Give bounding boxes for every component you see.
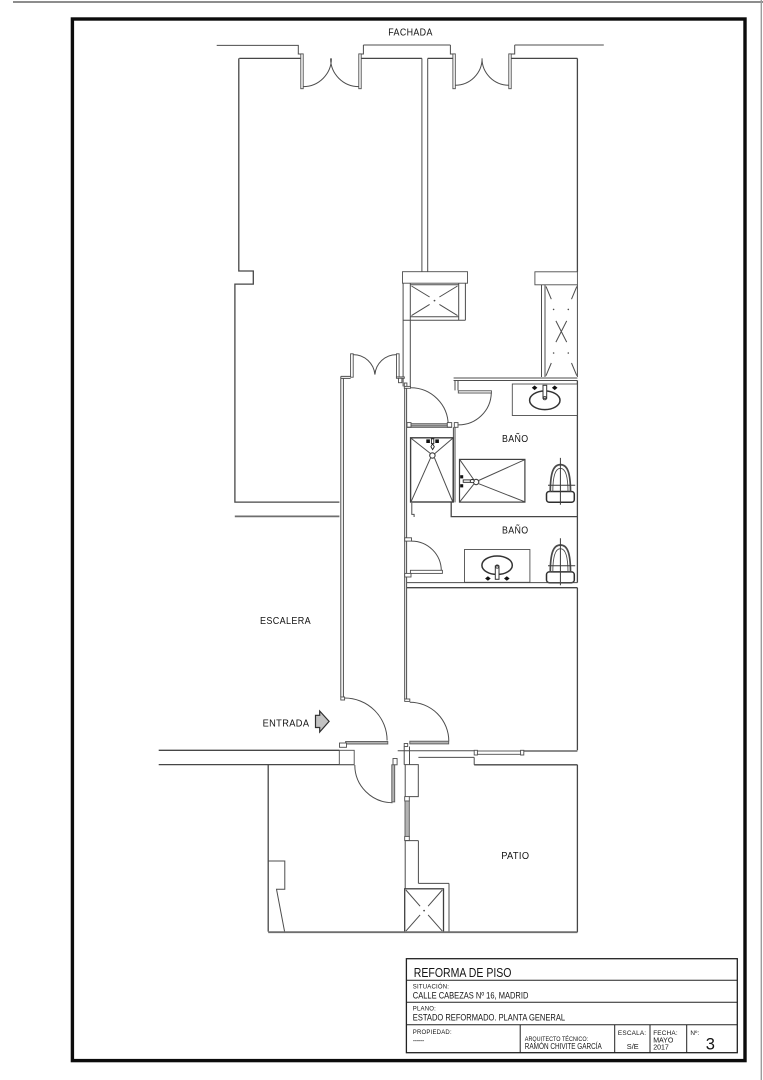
svg-text:RAMÓN CHIVITE GARCÍA: RAMÓN CHIVITE GARCÍA bbox=[525, 1042, 603, 1051]
svg-text:S/E: S/E bbox=[627, 1042, 639, 1051]
svg-text:FECHA:: FECHA: bbox=[653, 1030, 678, 1037]
svg-text:SITUACIÓN:: SITUACIÓN: bbox=[413, 983, 449, 990]
svg-text:------: ------ bbox=[413, 1038, 425, 1045]
svg-text:MAYO: MAYO bbox=[653, 1037, 674, 1044]
svg-text:3: 3 bbox=[706, 1036, 715, 1054]
svg-text:ESCALERA: ESCALERA bbox=[260, 616, 311, 627]
svg-text:REFORMA DE PISO: REFORMA DE PISO bbox=[414, 965, 512, 980]
svg-text:BAÑO: BAÑO bbox=[502, 432, 529, 445]
svg-text:BAÑO: BAÑO bbox=[502, 523, 529, 536]
svg-text:Nº:: Nº: bbox=[690, 1030, 699, 1037]
svg-text:ENTRADA: ENTRADA bbox=[263, 718, 310, 729]
svg-text:FACHADA: FACHADA bbox=[388, 27, 433, 38]
svg-text:2017: 2017 bbox=[653, 1045, 669, 1052]
svg-text:ESTADO REFORMADO. PLANTA GENER: ESTADO REFORMADO. PLANTA GENERAL bbox=[413, 1013, 565, 1023]
svg-text:PROPIEDAD:: PROPIEDAD: bbox=[413, 1030, 452, 1036]
svg-text:PLANO:: PLANO: bbox=[413, 1006, 436, 1012]
svg-text:CALLE CABEZAS Nº 16, MADRID: CALLE CABEZAS Nº 16, MADRID bbox=[413, 991, 529, 1001]
svg-text:PATIO: PATIO bbox=[501, 851, 529, 862]
svg-text:ESCALA:: ESCALA: bbox=[618, 1030, 646, 1037]
